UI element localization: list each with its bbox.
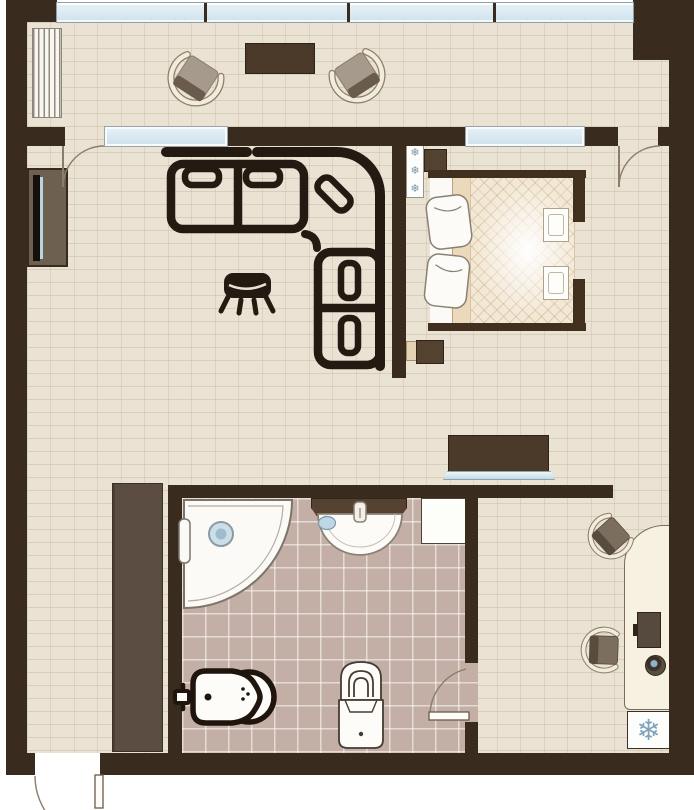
floor-plan: ❄ ❄ ❄ ❄ [0, 0, 694, 810]
tv-screen [40, 177, 43, 259]
speaker-icon [645, 655, 666, 676]
bedroom-radiator: ❄ ❄ ❄ [406, 143, 424, 198]
wall-bottom-left [6, 753, 35, 775]
monitor-icon [637, 612, 661, 648]
entry-door [35, 775, 103, 810]
wall-balcony-divider-2 [226, 127, 468, 146]
glazing-mullion [347, 3, 350, 22]
wall-bathroom-left [168, 485, 182, 753]
towel-fold-line [548, 272, 564, 294]
snowflake-icon: ❄ [410, 147, 419, 158]
wall-bottom [100, 753, 694, 775]
snowflake-icon: ❄ [410, 165, 419, 176]
towel-fold-line [548, 214, 564, 236]
towel-on-bed [543, 208, 569, 242]
tv-icon [33, 175, 40, 261]
living-room-window [105, 127, 227, 146]
glazing-mullion [204, 3, 207, 22]
wardrobe [112, 483, 163, 752]
wall-balcony-divider-4 [658, 127, 669, 146]
bed-duvet [470, 176, 575, 324]
bed-headboard [452, 174, 472, 326]
refrigerator: ❄ [627, 711, 670, 749]
bedroom-window [466, 127, 584, 146]
sideboard-glass-shelf [443, 471, 555, 480]
bed-frame-right-bottom [573, 279, 585, 331]
nightstand-bottom [416, 340, 444, 364]
balcony-glazing [57, 3, 633, 22]
towel-on-bed [543, 266, 569, 300]
snowflake-icon: ❄ [636, 716, 660, 745]
sideboard [448, 435, 549, 472]
wall-partition-living-bedroom [392, 140, 406, 378]
wall-middle-horizontal [168, 485, 613, 498]
wall-balcony-divider-1 [27, 127, 65, 146]
glazing-mullion [493, 3, 496, 22]
wall-corner-top-left [6, 0, 57, 22]
wall-bathroom-right-stub [465, 722, 478, 753]
snowflake-icon: ❄ [410, 183, 419, 194]
wall-left [6, 0, 27, 775]
bed-frame-bottom [428, 323, 586, 331]
nightstand-top [424, 149, 447, 172]
bed-frame-top [428, 170, 586, 178]
washing-machine [421, 498, 467, 544]
wall-bathroom-right [465, 498, 478, 663]
balcony-radiator [32, 28, 62, 118]
balcony-coffee-table [245, 43, 315, 74]
bathroom-counter [311, 498, 407, 516]
wall-balcony-divider-3 [582, 127, 618, 146]
monitor-stand [633, 624, 638, 636]
bed-frame-right-top [573, 170, 585, 222]
wall-right [669, 0, 694, 775]
